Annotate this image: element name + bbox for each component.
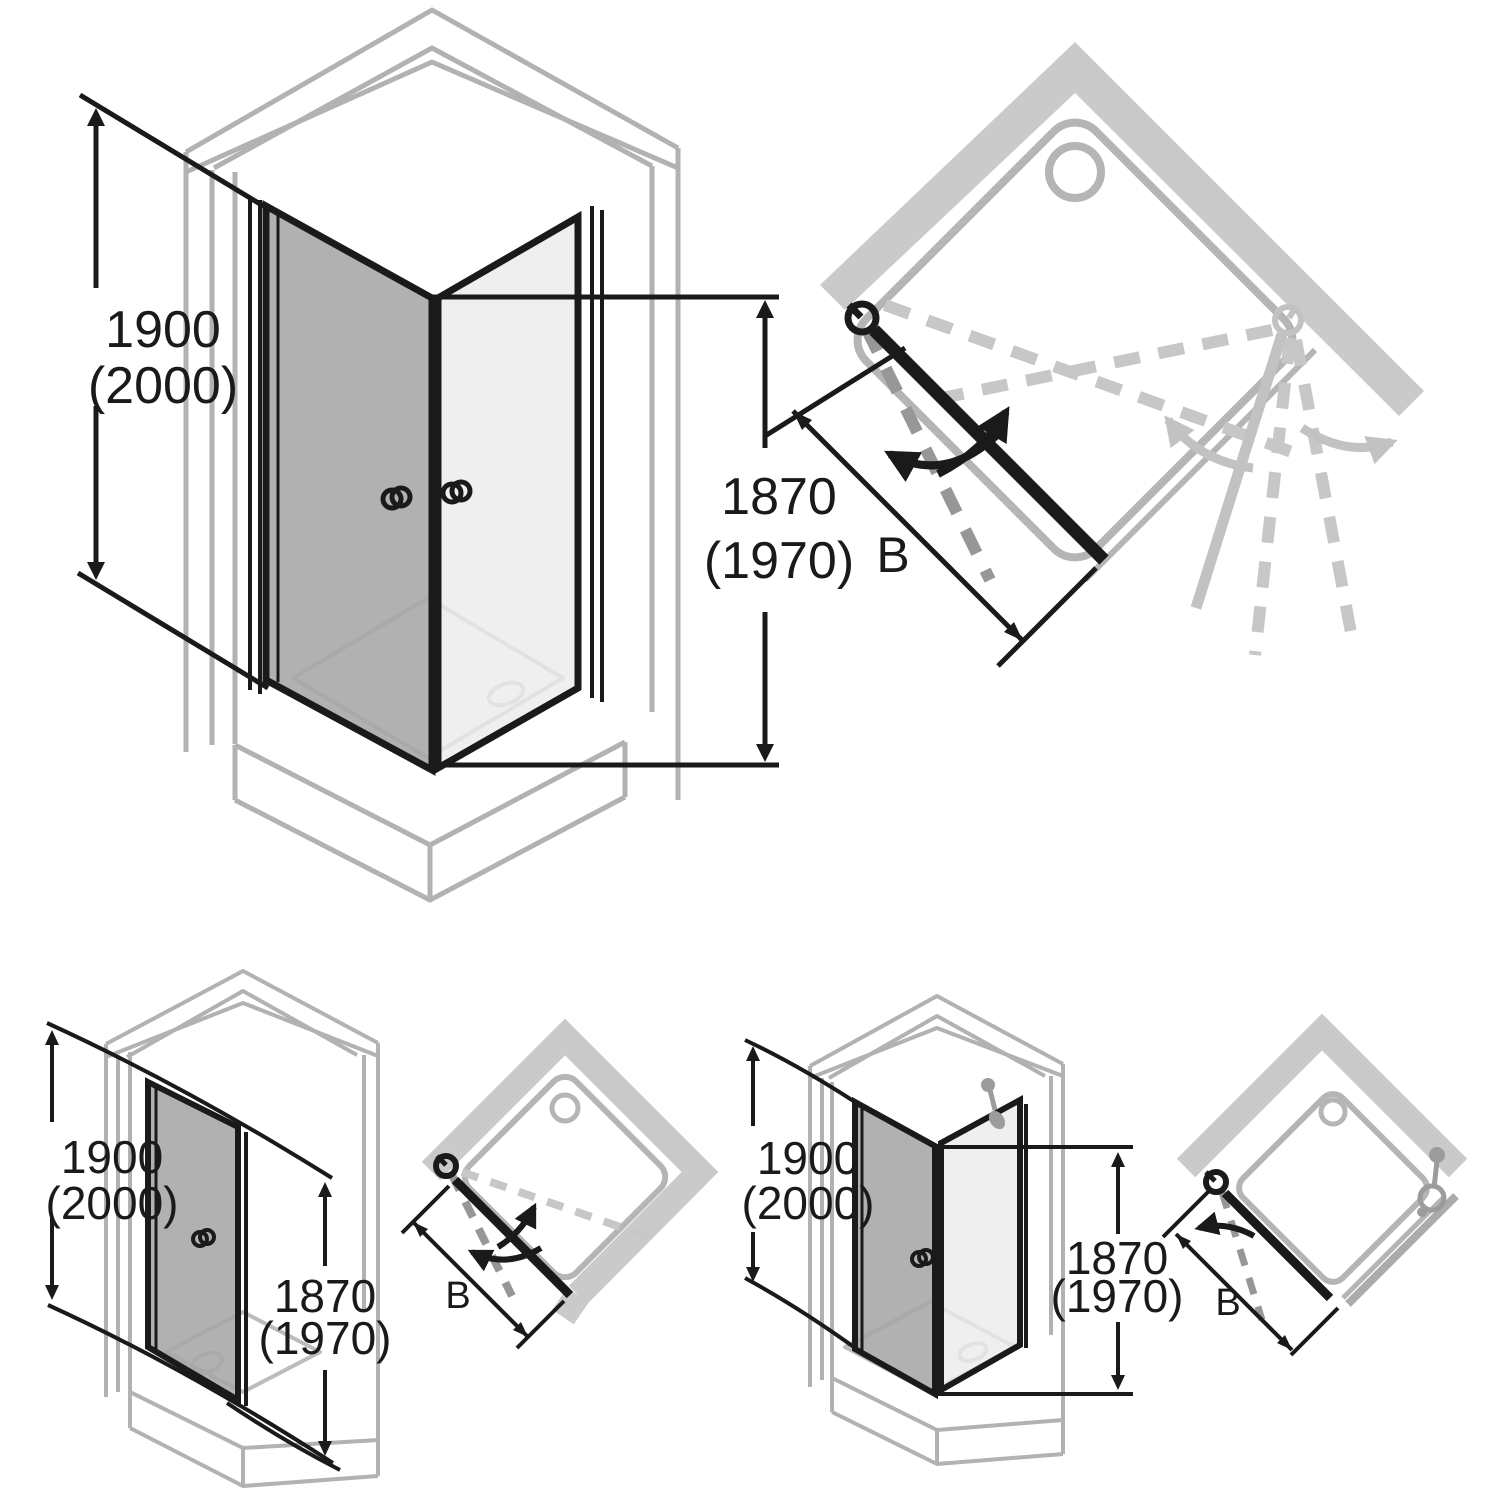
diagram-page: 1900 (2000) 1870 (1970) bbox=[0, 0, 1500, 1500]
arrowhead-down-icon bbox=[45, 1285, 59, 1300]
niche-door-plan: B bbox=[402, 1037, 700, 1348]
shower-tray bbox=[845, 110, 1305, 570]
corner-entry-plan: B bbox=[765, 42, 1424, 666]
door-height-alt-value: (1970) bbox=[259, 1312, 392, 1364]
niche-door-isometric: 1900 (2000) 1870 (1970) bbox=[45, 971, 391, 1486]
dimension-door-height: 1870 (1970) bbox=[227, 1182, 391, 1470]
side-panel-isometric: 1900 (2000) 1870 (1970) bbox=[742, 996, 1184, 1464]
arrowhead-up-icon bbox=[45, 1030, 59, 1045]
width-label: B bbox=[1215, 1282, 1240, 1324]
arrowhead-down-icon bbox=[756, 744, 774, 762]
width-label: B bbox=[876, 527, 909, 583]
arrowhead-up-icon bbox=[318, 1182, 332, 1197]
arrowhead-down-icon bbox=[1111, 1375, 1125, 1390]
door-panel bbox=[855, 1102, 935, 1394]
arrowhead-up-icon bbox=[1111, 1152, 1125, 1167]
height-alt-value: (2000) bbox=[88, 357, 238, 415]
ghost-door-swing-dashed bbox=[1296, 340, 1352, 638]
height-value: 1900 bbox=[61, 1131, 163, 1183]
side-panel-glass bbox=[941, 1100, 1020, 1390]
shower-enclosure-diagram: 1900 (2000) 1870 (1970) bbox=[0, 0, 1500, 1500]
width-label: B bbox=[445, 1275, 470, 1317]
side-panel-plan: B bbox=[1163, 1032, 1458, 1355]
height-alt-value: (2000) bbox=[742, 1177, 875, 1229]
dimension-height: 1900 (2000) bbox=[78, 95, 270, 688]
swing-arrow-arc bbox=[1199, 1226, 1254, 1236]
door-height-alt-value: (1970) bbox=[704, 532, 854, 590]
height-alt-value: (2000) bbox=[46, 1177, 179, 1229]
door-height-alt-value: (1970) bbox=[1051, 1270, 1184, 1322]
height-value: 1900 bbox=[105, 301, 221, 359]
arrowhead-up-icon bbox=[756, 300, 774, 318]
door-height-value: 1870 bbox=[721, 468, 837, 526]
corner-entry-isometric: 1900 (2000) 1870 (1970) bbox=[78, 10, 854, 900]
